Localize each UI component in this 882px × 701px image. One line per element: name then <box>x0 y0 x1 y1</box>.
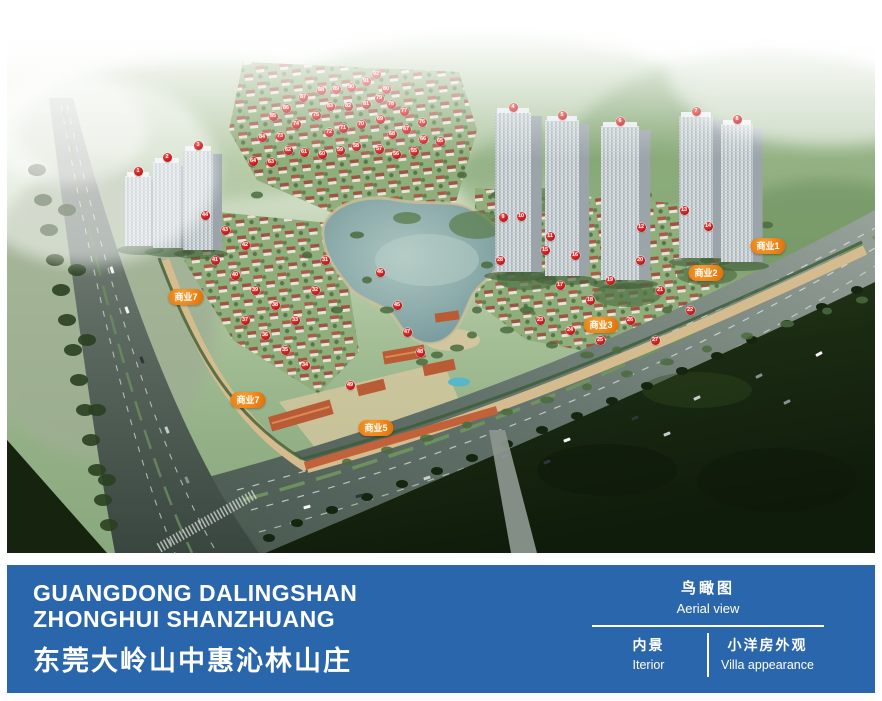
building-number-marker: 55 <box>410 147 419 156</box>
nav-divider-line <box>592 625 824 627</box>
building-number-marker: 37 <box>241 316 250 325</box>
building-number-marker: 44 <box>201 211 210 220</box>
brochure-page: 1234567891011121314151617181920212223242… <box>0 0 882 701</box>
nav-vertical-divider <box>707 633 709 677</box>
nav-interior[interactable]: 内景 Iterior <box>592 633 705 677</box>
commercial-label: 商业5 <box>358 420 393 436</box>
building-number-marker: 66 <box>419 135 428 144</box>
building-number-marker: 68 <box>388 130 397 139</box>
building-number-marker: 39 <box>251 286 260 295</box>
building-number-marker: 69 <box>376 115 385 124</box>
building-number-marker: 1 <box>134 167 143 176</box>
building-number-marker: 25 <box>596 336 605 345</box>
building-number-marker: 65 <box>436 137 445 146</box>
building-number-marker: 41 <box>211 256 220 265</box>
building-number-marker: 14 <box>704 222 713 231</box>
building-number-marker: 8 <box>733 115 742 124</box>
building-number-marker: 77 <box>400 107 409 116</box>
nav-interior-en: Iterior <box>592 658 705 672</box>
nav-current-view: 鸟瞰图 Aerial view <box>592 577 824 616</box>
building-number-marker: 38 <box>271 301 280 310</box>
building-number-marker: 23 <box>536 316 545 325</box>
building-number-marker: 80 <box>382 85 391 94</box>
commercial-label: 商业7 <box>168 289 203 305</box>
building-number-marker: 15 <box>541 246 550 255</box>
nav-interior-zh: 内景 <box>592 635 705 655</box>
project-title-zh: 东莞大岭山中惠沁林山庄 <box>33 639 357 678</box>
aerial-view-image: 1234567891011121314151617181920212223242… <box>7 10 875 553</box>
commercial-label: 商业2 <box>688 265 723 281</box>
building-number-marker: 57 <box>375 145 384 154</box>
building-number-marker: 7 <box>692 107 701 116</box>
nav-current-view-en: Aerial view <box>592 601 824 616</box>
building-number-marker: 91 <box>362 77 371 86</box>
commercial-label: 商业3 <box>583 317 618 333</box>
view-nav: 鸟瞰图 Aerial view 内景 Iterior 小洋房外观 Villa a… <box>592 577 824 677</box>
building-number-marker: 92 <box>372 70 381 79</box>
nav-current-view-zh: 鸟瞰图 <box>592 577 824 598</box>
building-number-marker: 59 <box>336 146 345 155</box>
building-number-marker: 58 <box>352 142 361 151</box>
building-number-marker: 33 <box>291 316 300 325</box>
commercial-label: 商业7 <box>230 392 265 408</box>
building-number-marker: 28 <box>496 256 505 265</box>
building-number-marker: 17 <box>556 281 565 290</box>
nav-villa-appearance-zh: 小洋房外观 <box>711 635 824 655</box>
building-number-marker: 61 <box>300 148 309 157</box>
building-number-marker: 78 <box>387 100 396 109</box>
building-number-marker: 12 <box>637 223 646 232</box>
footer-bar: GUANGDONG DALINGSHAN ZHONGHUI SHANZHUANG… <box>7 565 875 693</box>
building-number-marker: 36 <box>261 331 270 340</box>
building-number-marker: 70 <box>357 120 366 129</box>
building-number-marker: 22 <box>686 306 695 315</box>
building-number-marker: 63 <box>267 158 276 167</box>
building-number-marker: 34 <box>301 361 310 370</box>
building-number-marker: 71 <box>339 124 348 133</box>
building-number-marker: 32 <box>311 286 320 295</box>
building-number-marker: 84 <box>258 133 267 142</box>
building-number-marker: 47 <box>403 328 412 337</box>
building-number-marker: 13 <box>680 206 689 215</box>
building-number-marker: 46 <box>376 268 385 277</box>
nav-villa-appearance[interactable]: 小洋房外观 Villa appearance <box>711 633 824 677</box>
building-number-marker: 4 <box>509 103 518 112</box>
building-number-marker: 18 <box>586 296 595 305</box>
building-number-marker: 88 <box>317 86 326 95</box>
building-number-marker: 20 <box>636 256 645 265</box>
building-number-marker: 3 <box>194 141 203 150</box>
project-title-block: GUANGDONG DALINGSHAN ZHONGHUI SHANZHUANG… <box>33 580 357 678</box>
building-number-marker: 60 <box>318 150 327 159</box>
building-number-marker: 6 <box>616 117 625 126</box>
building-number-marker: 35 <box>281 346 290 355</box>
nav-villa-appearance-en: Villa appearance <box>711 658 824 672</box>
building-number-marker: 75 <box>312 111 321 120</box>
building-number-marker: 45 <box>393 301 402 310</box>
building-number-marker: 40 <box>231 271 240 280</box>
building-number-marker: 82 <box>344 102 353 111</box>
building-number-marker: 74 <box>292 120 301 129</box>
commercial-label: 商业1 <box>750 238 785 254</box>
project-title-en-line1: GUANGDONG DALINGSHAN <box>33 580 357 606</box>
building-number-marker: 24 <box>566 326 575 335</box>
building-number-marker: 62 <box>284 146 293 155</box>
building-number-marker: 90 <box>347 83 356 92</box>
building-number-marker: 76 <box>418 118 427 127</box>
building-number-marker: 26 <box>626 316 635 325</box>
building-number-marker: 48 <box>416 348 425 357</box>
building-number-marker: 16 <box>571 251 580 260</box>
building-number-marker: 19 <box>606 276 615 285</box>
building-number-marker: 72 <box>325 128 334 137</box>
building-number-marker: 89 <box>332 85 341 94</box>
building-number-marker: 67 <box>402 125 411 134</box>
building-number-marker: 79 <box>375 94 384 103</box>
building-number-marker: 10 <box>517 212 526 221</box>
building-number-marker: 11 <box>546 232 555 241</box>
building-number-marker: 31 <box>321 256 330 265</box>
building-number-marker: 42 <box>241 241 250 250</box>
building-number-marker: 83 <box>326 102 335 111</box>
building-number-marker: 81 <box>362 100 371 109</box>
building-number-marker: 86 <box>282 104 291 113</box>
building-number-marker: 64 <box>249 157 258 166</box>
building-number-marker: 43 <box>221 226 230 235</box>
building-number-marker: 73 <box>276 132 285 141</box>
building-number-marker: 21 <box>656 286 665 295</box>
building-number-marker: 2 <box>163 153 172 162</box>
building-number-marker: 9 <box>499 213 508 222</box>
building-number-marker: 27 <box>651 336 660 345</box>
marker-overlay: 1234567891011121314151617181920212223242… <box>7 10 875 553</box>
project-title-en-line2: ZHONGHUI SHANZHUANG <box>33 606 357 632</box>
building-number-marker: 5 <box>558 111 567 120</box>
building-number-marker: 49 <box>346 381 355 390</box>
building-number-marker: 56 <box>392 150 401 159</box>
building-number-marker: 85 <box>269 112 278 121</box>
building-number-marker: 87 <box>299 93 308 102</box>
